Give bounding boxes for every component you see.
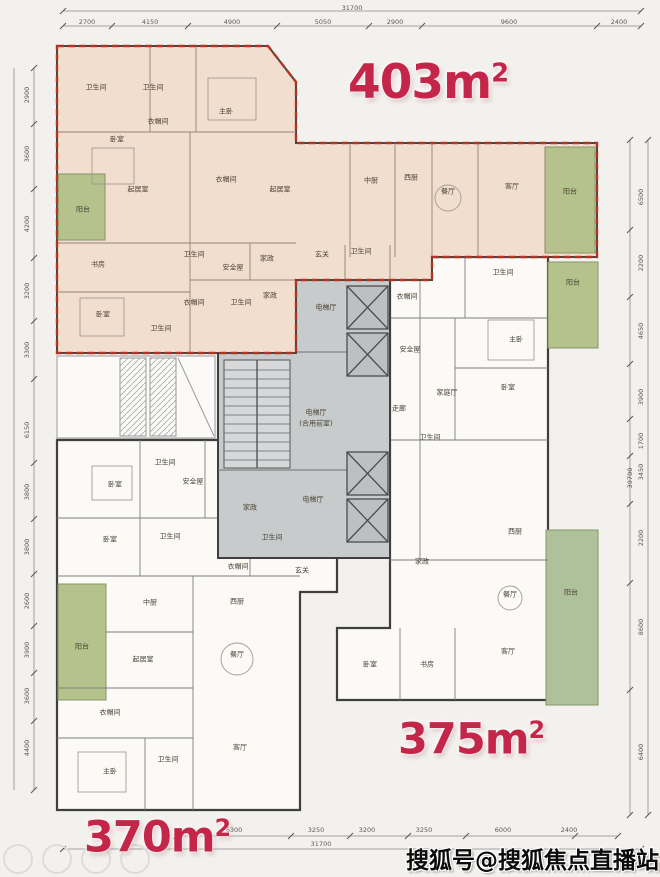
area-375-number: 375m: [398, 714, 529, 764]
floor-plan-drawing: [0, 0, 660, 877]
area-label-375: 375m2: [398, 720, 545, 759]
floor-plan-screenshot: 卫生间卫生间主卧衣帽间卧室起居室阳台衣帽间起居室中厨西厨餐厅客厅阳台书房卫生间安…: [0, 0, 660, 877]
sohu-watermark: 搜狐号@搜狐焦点直播站: [406, 841, 659, 875]
area-375-sup: 2: [529, 716, 545, 744]
area-370-number: 370m: [84, 812, 215, 862]
balcony-375-upper: [548, 262, 598, 348]
area-403-sup: 2: [491, 58, 509, 88]
balcony-375-lower: [546, 530, 598, 705]
area-label-403: 403m2: [348, 62, 509, 104]
area-370-sup: 2: [215, 814, 231, 842]
shaft-zone: [57, 356, 215, 438]
balcony-403-right: [545, 147, 595, 253]
area-label-370: 370m2: [84, 818, 231, 857]
area-403-number: 403m: [348, 55, 491, 110]
balcony-370-left: [58, 584, 106, 700]
